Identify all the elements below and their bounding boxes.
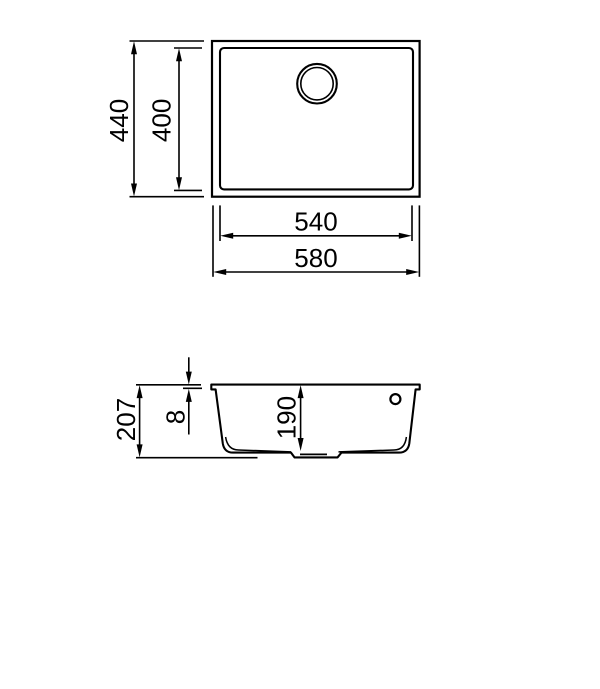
svg-text:8: 8 xyxy=(161,410,191,424)
svg-text:440: 440 xyxy=(104,99,134,142)
svg-text:540: 540 xyxy=(294,207,337,237)
svg-text:207: 207 xyxy=(111,398,141,441)
svg-text:190: 190 xyxy=(272,396,302,439)
svg-text:580: 580 xyxy=(294,243,337,273)
svg-text:400: 400 xyxy=(147,99,177,142)
